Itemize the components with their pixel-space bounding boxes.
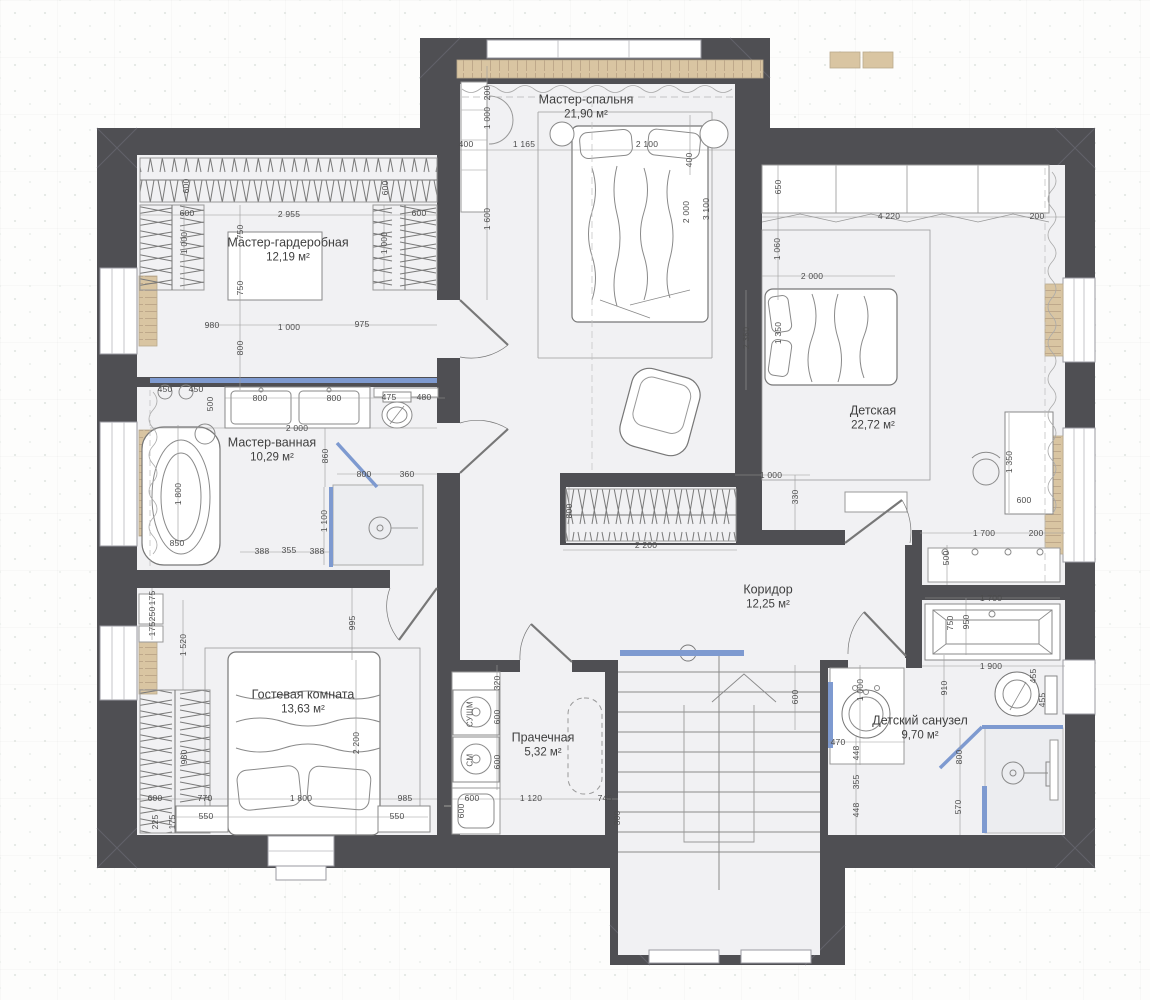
nursery-bench <box>928 548 1060 582</box>
shelf-tan-2 <box>863 52 893 68</box>
window-closet-west <box>100 268 137 354</box>
nursery-bed <box>765 289 897 385</box>
kids-bath-toilet <box>995 672 1057 716</box>
shelf-tan-1 <box>830 52 860 68</box>
window-sill-guest <box>276 866 326 880</box>
floor-corridor <box>560 545 905 660</box>
shower-master <box>333 485 423 565</box>
window-stair-south-1 <box>649 950 719 963</box>
window-kids-bath-east <box>1063 660 1095 714</box>
window-nursery-east-2 <box>1063 428 1095 562</box>
nightstand-left <box>176 806 228 832</box>
toilet-master <box>382 392 412 428</box>
stair-glass-rail <box>620 650 744 656</box>
window-stair-south-2 <box>741 950 811 963</box>
vanity-double-sink <box>225 387 370 428</box>
deck-bedroom-north <box>457 60 763 78</box>
window-bath-west <box>100 422 137 546</box>
nightstand-right <box>378 806 430 832</box>
closet-island <box>228 232 322 300</box>
master-bed <box>572 126 708 322</box>
bedside-table-right <box>700 120 728 148</box>
floor-plan-drawing <box>0 0 1150 1000</box>
bedside-table-left <box>550 122 574 146</box>
kids-bathtub <box>925 604 1060 660</box>
kids-shower <box>985 728 1063 833</box>
vanity-mirror <box>150 378 437 383</box>
floor-plan-canvas: Мастер-спальня21,90 м²Мастер-гардеробная… <box>0 0 1150 1000</box>
window-nursery-east-1 <box>1063 278 1095 362</box>
kids-bath-vanity <box>830 668 904 764</box>
guest-bed <box>228 652 380 835</box>
corridor-wardrobe-niche <box>566 489 736 541</box>
window-bedroom-north <box>487 40 701 58</box>
kids-bath-mirror <box>828 682 833 748</box>
window-guest-west <box>100 626 137 700</box>
floor-corridor-west <box>460 473 560 660</box>
laundry-appliances <box>444 672 500 834</box>
nursery-wardrobe <box>762 165 1049 222</box>
